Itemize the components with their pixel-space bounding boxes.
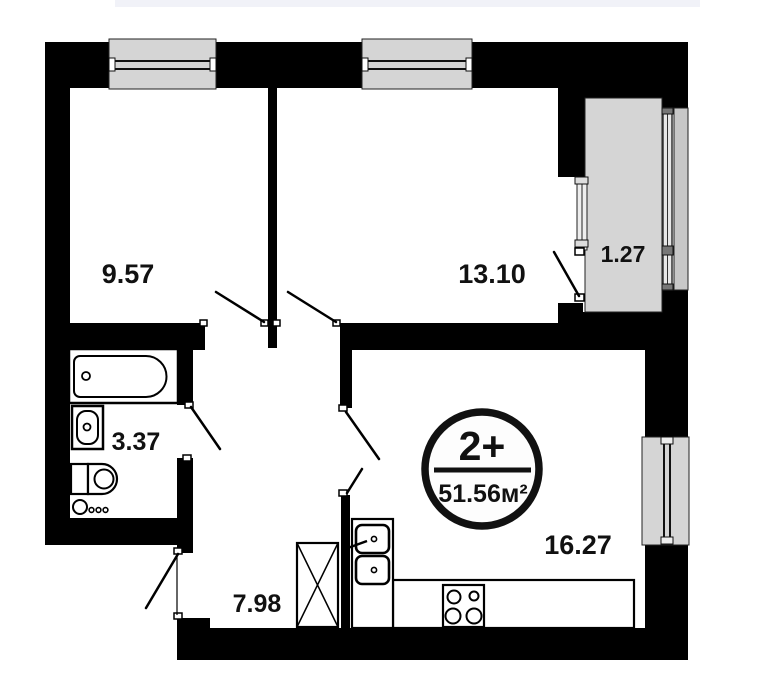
window-cap — [466, 58, 472, 71]
wall-bottom — [177, 628, 688, 660]
balcony-slab — [585, 98, 662, 312]
glazing-cap — [662, 108, 673, 114]
window-cap — [109, 58, 115, 71]
floorplan-drawing: 9.57 13.10 1.27 3.37 16.27 7.98 2+ 51.56… — [0, 0, 761, 700]
label-bathroom-area: 3.37 — [112, 428, 161, 456]
counter — [393, 580, 634, 628]
glazing-cap — [662, 246, 673, 255]
wall-kitchen-left-stub — [341, 495, 350, 628]
label-hallway-area: 7.98 — [233, 590, 282, 618]
door-jamb — [174, 613, 182, 619]
stove-icon — [443, 585, 484, 627]
wall-kitchen-left-upper — [340, 323, 352, 408]
window-kitchen — [642, 437, 689, 545]
wall-balcony-stub — [558, 303, 583, 325]
label-kitchen-area: 16.27 — [544, 530, 612, 560]
door-jamb — [183, 455, 191, 461]
apartment-badge: 2+ 51.56м² — [425, 412, 539, 526]
window-icon — [642, 437, 689, 545]
kitchen-sink-icon — [345, 519, 393, 628]
window-cap — [210, 58, 216, 71]
door-jamb — [200, 320, 207, 326]
window-cap — [661, 437, 673, 444]
wall-bath-right-upper — [177, 350, 193, 405]
window-cap — [661, 537, 673, 544]
label-bedroom-left-area: 9.57 — [102, 259, 155, 289]
door-jamb — [273, 320, 280, 326]
wall-central — [268, 88, 277, 348]
window-cap — [575, 240, 588, 247]
wall-bath-bottom — [45, 518, 178, 545]
wall-mid-horizontal-left — [45, 323, 205, 350]
window-top-left — [109, 39, 216, 89]
window-icon — [362, 39, 472, 89]
wall-bath-right-lower — [177, 458, 193, 553]
door-jamb — [339, 405, 347, 411]
washbasin-icon — [72, 406, 103, 449]
floorplan-page: 9.57 13.10 1.27 3.37 16.27 7.98 2+ 51.56… — [0, 0, 761, 700]
wall-left — [45, 42, 70, 545]
window-top-right — [362, 39, 472, 89]
door-jamb — [575, 248, 584, 255]
window-cap — [575, 177, 588, 184]
wall-bottom-left-step — [177, 618, 210, 660]
glazing-cap — [662, 284, 673, 290]
toilet-icon — [71, 464, 117, 494]
top-strip — [115, 0, 700, 7]
window-icon — [109, 39, 216, 89]
wardrobe-icon — [297, 543, 338, 627]
badge-type-label: 2+ — [459, 423, 506, 469]
balcony-area — [575, 98, 688, 312]
wall-top-right-corner — [661, 88, 688, 110]
label-balcony-area: 1.27 — [601, 241, 646, 267]
balcony-outer-panel — [674, 108, 688, 290]
window-cap — [362, 58, 368, 71]
badge-area-label: 51.56м² — [438, 480, 527, 508]
label-bedroom-right-area: 13.10 — [458, 259, 526, 289]
bathtub-icon — [69, 349, 178, 403]
